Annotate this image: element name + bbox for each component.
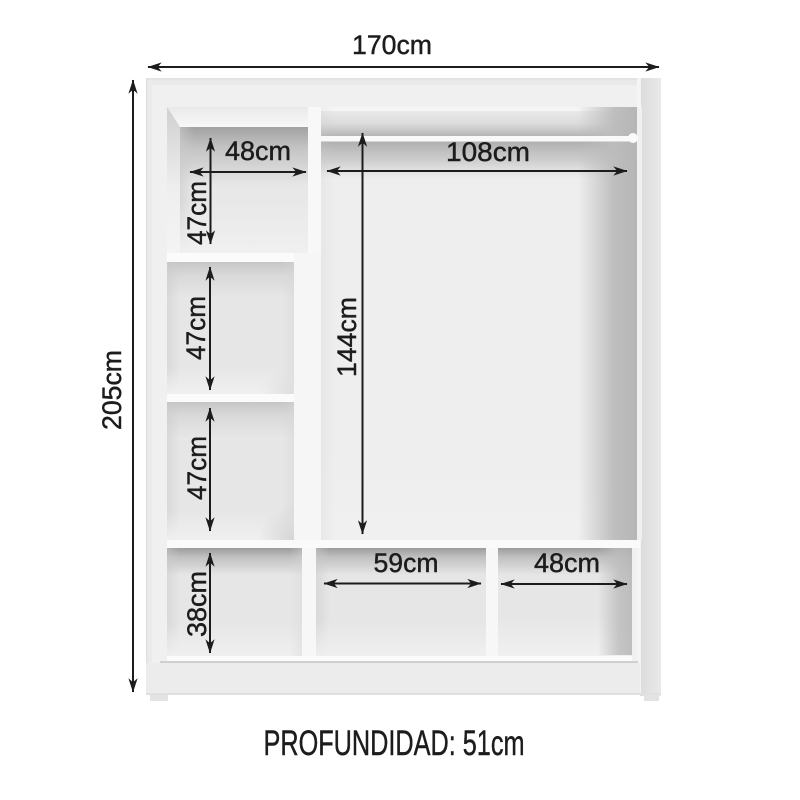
svg-text:47cm: 47cm [182, 181, 212, 245]
svg-text:PROFUNDIDAD: 51cm: PROFUNDIDAD: 51cm [264, 724, 525, 763]
svg-text:108cm: 108cm [446, 137, 530, 167]
svg-text:144cm: 144cm [332, 297, 362, 377]
svg-text:47cm: 47cm [182, 436, 212, 500]
svg-text:205cm: 205cm [97, 350, 127, 430]
svg-text:170cm: 170cm [352, 30, 432, 60]
svg-text:48cm: 48cm [225, 136, 291, 166]
svg-text:47cm: 47cm [181, 296, 211, 360]
svg-text:38cm: 38cm [182, 571, 212, 637]
svg-text:48cm: 48cm [534, 548, 600, 578]
svg-text:59cm: 59cm [374, 548, 439, 578]
